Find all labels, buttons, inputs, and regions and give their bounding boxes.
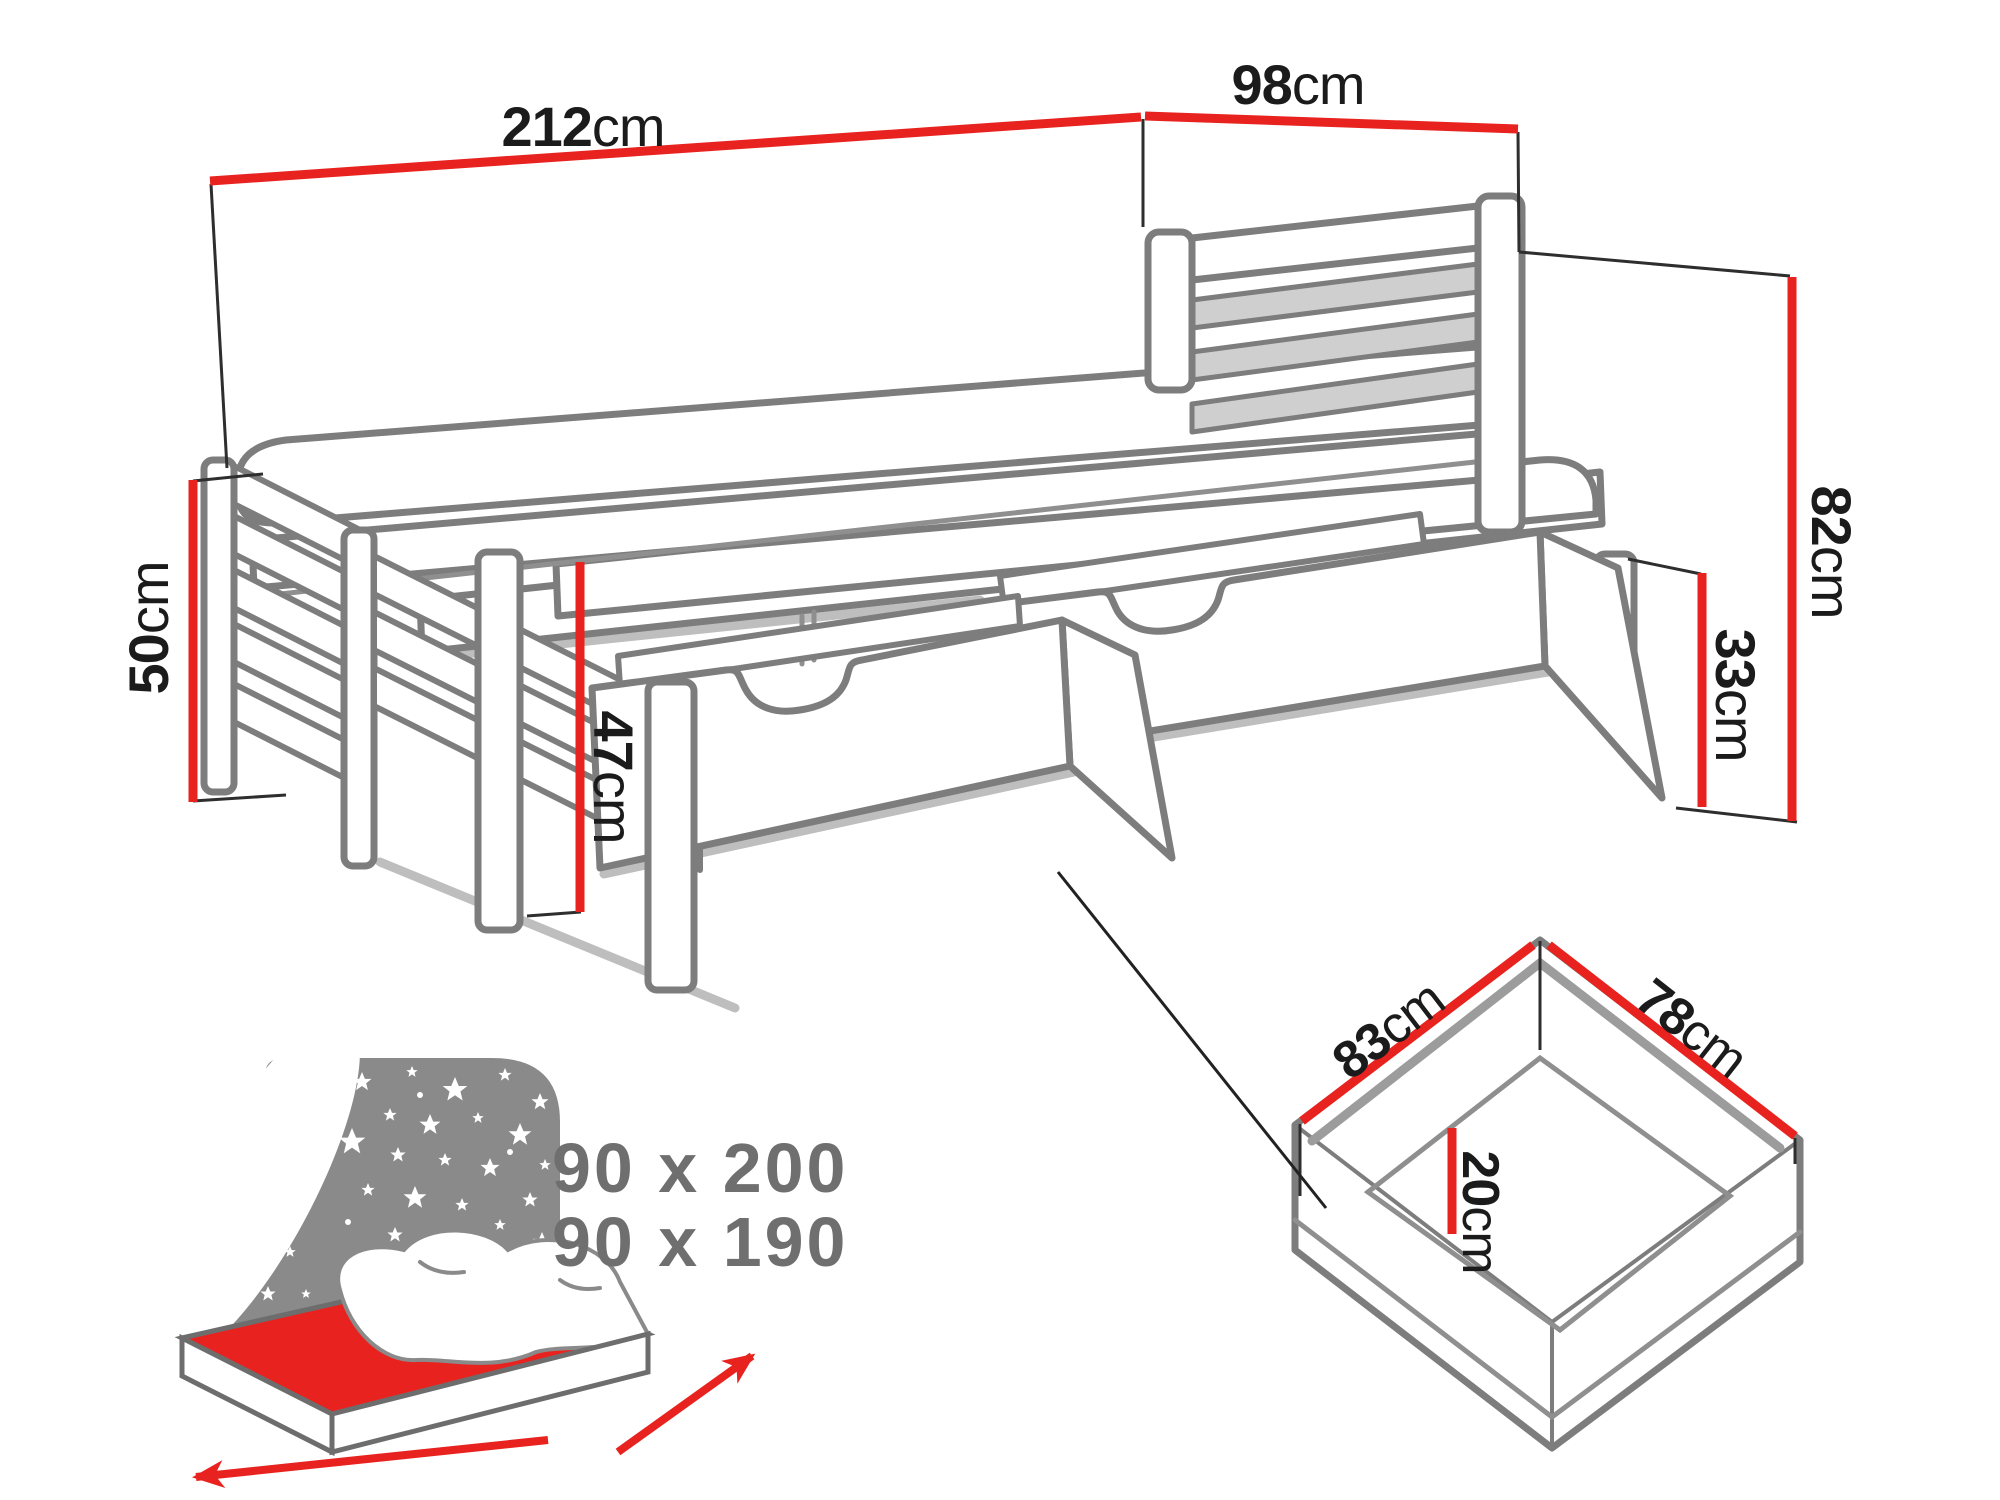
label-drawer-front-height: 33cm bbox=[1704, 629, 1767, 762]
trundle-front-post-2 bbox=[648, 682, 694, 990]
label-total-length: 212cm bbox=[501, 95, 664, 158]
dim-line-98 bbox=[1145, 116, 1518, 129]
headboard-right-post bbox=[1478, 196, 1522, 532]
trundle-front-post bbox=[478, 552, 520, 930]
dim-line-212 bbox=[210, 117, 1141, 181]
footboard-left-post bbox=[204, 460, 234, 792]
right-drawer-side bbox=[1540, 532, 1662, 798]
mattress-sizes: 90 x 200 90 x 190 bbox=[552, 1129, 848, 1281]
mattress-size-1: 90 x 200 bbox=[552, 1129, 848, 1207]
ext-82-33-bottom bbox=[1676, 808, 1797, 822]
ext-98-right bbox=[1518, 132, 1519, 252]
drawer-detail-leader-line bbox=[1058, 872, 1326, 1208]
label-headboard-height: 82cm bbox=[1800, 486, 1863, 619]
footboard bbox=[204, 460, 374, 866]
bed-dimension-diagram: 212cm 98cm 82cm 33cm 50cm 47cm 83cm 78cm… bbox=[0, 0, 2000, 1500]
label-footboard-height: 50cm bbox=[117, 562, 180, 695]
label-drawer-inner-depth: 20cm bbox=[1451, 1150, 1509, 1273]
ext-82-top bbox=[1519, 252, 1790, 276]
bed-line-art bbox=[204, 196, 1662, 1008]
ext-212-left bbox=[211, 184, 227, 468]
icon-length-arrow bbox=[196, 1440, 548, 1477]
diagram-stage: 212cm 98cm 82cm 33cm 50cm 47cm 83cm 78cm… bbox=[0, 0, 2000, 1500]
footboard-right-post bbox=[344, 530, 374, 866]
ext-50-bottom bbox=[193, 795, 286, 801]
ext-33-top bbox=[1628, 559, 1701, 574]
mattress-size-2: 90 x 190 bbox=[552, 1203, 848, 1281]
label-headboard-width: 98cm bbox=[1232, 53, 1365, 116]
label-underbed-height: 47cm bbox=[582, 711, 645, 844]
ext-47-bottom bbox=[527, 912, 581, 916]
headboard-left-post bbox=[1148, 232, 1192, 390]
